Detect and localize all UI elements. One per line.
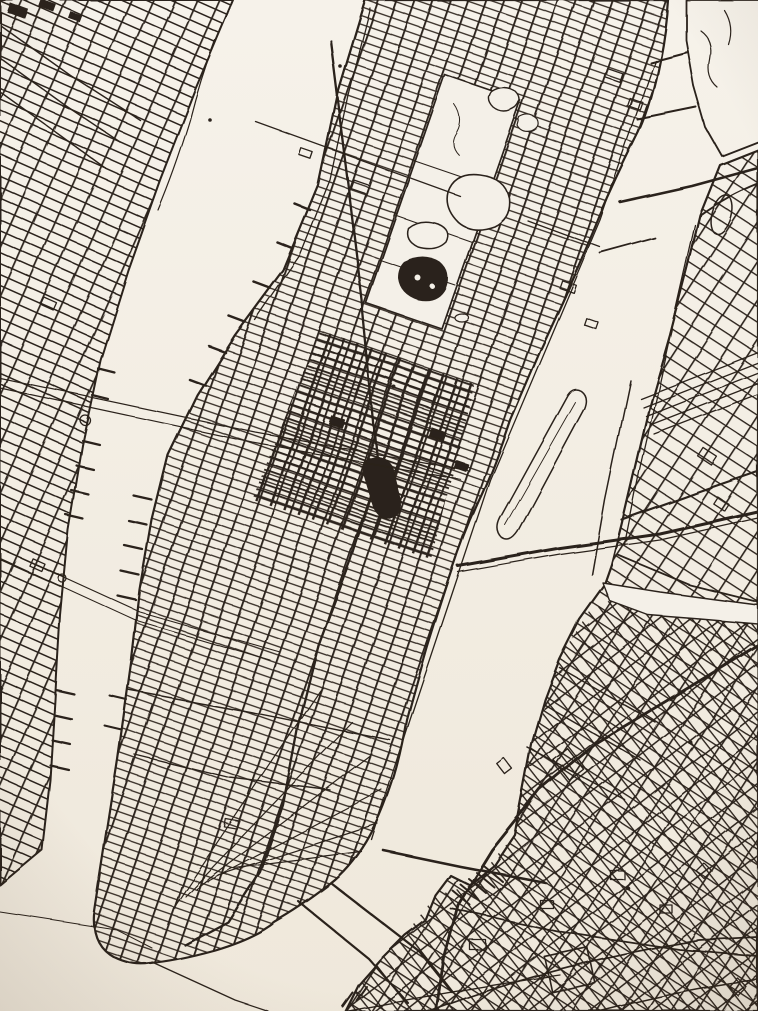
nyc-ink-map: Hand-drawn black ink street map of New Y…	[0, 0, 758, 1011]
photo-vignette	[0, 0, 758, 1011]
map-print-photo: Hand-drawn black ink street map of New Y…	[0, 0, 758, 1011]
